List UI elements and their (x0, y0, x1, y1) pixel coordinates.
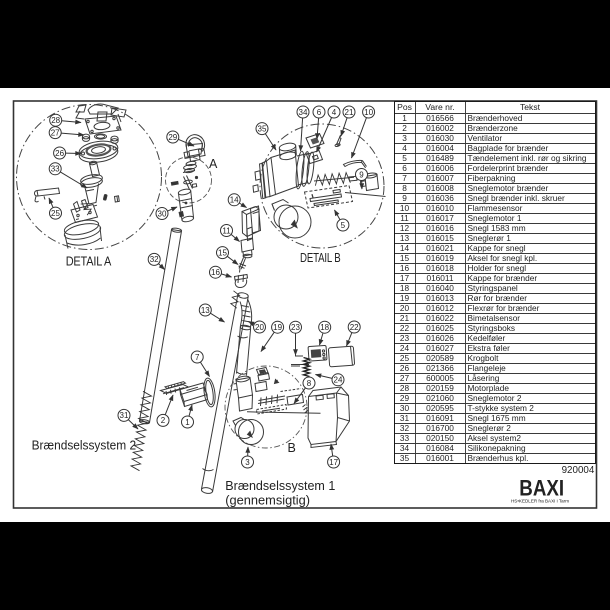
svg-text:7: 7 (195, 353, 200, 362)
svg-text:33: 33 (51, 165, 60, 174)
svg-text:HS•KEDLER fra BAXI i Tarm: HS•KEDLER fra BAXI i Tarm (511, 498, 569, 503)
svg-text:19: 19 (273, 323, 282, 332)
svg-text:17: 17 (329, 458, 338, 467)
svg-text:6: 6 (317, 108, 322, 117)
svg-text:16: 16 (211, 268, 220, 277)
svg-text:21: 21 (345, 108, 354, 117)
svg-text:13: 13 (201, 306, 210, 315)
svg-text:26: 26 (55, 149, 64, 158)
svg-text:4: 4 (332, 108, 337, 117)
svg-text:15: 15 (218, 248, 227, 257)
svg-text:25: 25 (51, 209, 60, 218)
svg-text:31: 31 (120, 411, 129, 420)
svg-text:34: 34 (299, 108, 308, 117)
svg-text:10: 10 (364, 108, 373, 117)
svg-text:32: 32 (150, 255, 159, 264)
svg-text:Brændselssystem 2: Brændselssystem 2 (32, 438, 137, 453)
svg-text:20: 20 (255, 323, 264, 332)
svg-text:11: 11 (222, 226, 231, 235)
svg-text:DETAIL A: DETAIL A (66, 255, 112, 269)
svg-text:30: 30 (158, 209, 167, 218)
svg-text:8: 8 (307, 379, 312, 388)
svg-text:BAXI: BAXI (519, 476, 564, 501)
svg-text:22: 22 (350, 323, 359, 332)
svg-text:(gennemsigtig): (gennemsigtig) (225, 493, 310, 508)
svg-text:18: 18 (320, 323, 329, 332)
svg-text:5: 5 (341, 221, 346, 230)
svg-text:A: A (209, 157, 218, 171)
svg-text:2: 2 (161, 416, 166, 425)
svg-text:3: 3 (245, 458, 250, 467)
svg-text:27: 27 (51, 128, 60, 137)
svg-text:14: 14 (230, 196, 239, 205)
svg-text:DETAIL B: DETAIL B (300, 251, 341, 265)
svg-text:35: 35 (258, 124, 267, 133)
svg-text:24: 24 (334, 376, 343, 385)
svg-text:B: B (288, 441, 296, 455)
svg-text:23: 23 (291, 323, 300, 332)
svg-text:9: 9 (359, 170, 364, 179)
svg-text:1: 1 (185, 418, 190, 427)
svg-text:29: 29 (168, 133, 177, 142)
svg-text:28: 28 (51, 116, 60, 125)
svg-text:Brændselssystem 1: Brændselssystem 1 (225, 478, 335, 493)
svg-text:920004: 920004 (562, 465, 595, 476)
